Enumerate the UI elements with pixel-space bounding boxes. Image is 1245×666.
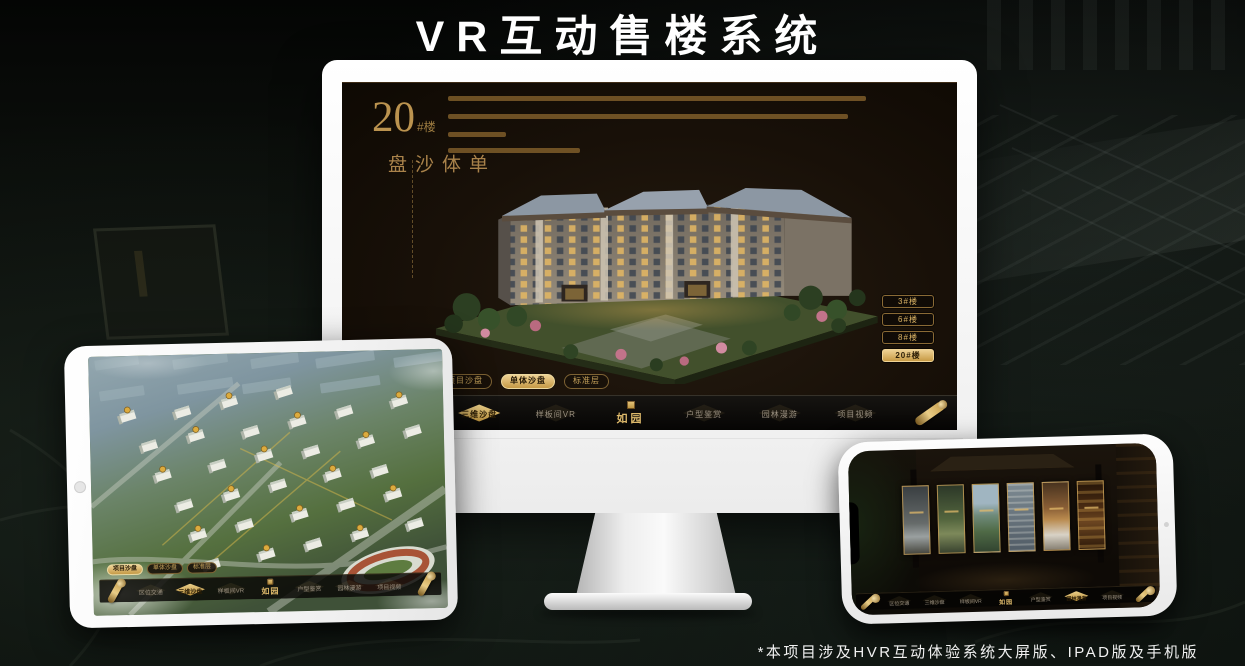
nav-item[interactable]: 园林漫游 (758, 402, 802, 424)
nav-item-label: 户型鉴赏 (686, 410, 722, 419)
nav-right-group: 户型鉴赏 园林漫游 项目视频 (285, 574, 413, 599)
nav-left-group: 区位交通 三维沙盘 样板间VR (127, 577, 255, 602)
nav-item-label: 项目视频 (377, 585, 401, 592)
scroll-menu-icon-right[interactable] (417, 572, 435, 596)
tablet-screen: 项目沙盘 单体沙盘 标准层 区位交通 (88, 349, 448, 616)
nav-item-label: 园林漫游 (337, 586, 361, 593)
nav-item[interactable]: 项目视频 (373, 574, 406, 597)
gallery-panel-building[interactable] (1007, 482, 1036, 552)
nav-item-label: 户型鉴赏 (1031, 597, 1051, 604)
building-3d-model (422, 152, 887, 384)
nav-item[interactable]: 户型鉴赏 (293, 576, 326, 599)
nav-item[interactable]: 区位交通 (885, 590, 914, 613)
nav-item[interactable]: 三维沙盘 (920, 589, 949, 612)
nav-item[interactable]: 户型鉴赏 (1026, 586, 1055, 609)
seal-icon (267, 579, 273, 585)
nav-item[interactable]: 样板间VR (532, 402, 580, 424)
nav-item-label: 样板间VR (218, 588, 244, 595)
gallery-panel-landscape[interactable] (972, 483, 1001, 553)
nav-item-label: 项目视频 (1102, 595, 1122, 602)
nav-item-label: 区位交通 (139, 590, 163, 597)
nav-right-group: 户型鉴赏 园林漫游 项目视频 (1019, 584, 1135, 609)
nav-item[interactable]: 三维沙盘 (174, 578, 207, 601)
building-number-suffix: #楼 (417, 120, 436, 134)
scene-gallery (902, 480, 1106, 555)
nav-item[interactable]: 园林漫游 (1062, 585, 1091, 608)
hero-divider (412, 160, 413, 278)
view-tab[interactable]: 单体沙盘 (147, 563, 183, 574)
pavilion-roof (922, 453, 1082, 471)
view-tab[interactable]: 标准层 (564, 374, 609, 389)
stage: VR互动售楼系统 20#楼 单体沙盘 (0, 0, 1245, 666)
monitor-stand (576, 513, 736, 596)
brand-logo[interactable]: 如园 (993, 590, 1019, 606)
scroll-menu-icon-left[interactable] (107, 579, 125, 603)
building-button[interactable]: 8#楼 (882, 331, 934, 344)
nav-right-group: 户型鉴赏 园林漫游 项目视频 (651, 402, 910, 424)
nav-left-group: 区位交通 三维沙盘 样板间VR (878, 587, 994, 612)
brand-logo[interactable]: 如园 (255, 578, 285, 597)
building-button[interactable]: 20#楼 (882, 349, 934, 362)
nav-item-label: 园林漫游 (1066, 596, 1086, 603)
monitor-view-tabs: 项目沙盘 单体沙盘 标准层 (438, 374, 609, 389)
nav-item-label: 样板间VR (536, 410, 576, 419)
gallery-panel-garden[interactable] (937, 484, 966, 554)
monitor-base (544, 593, 752, 610)
screen-top-accent (342, 82, 957, 83)
phone-camera-dot (1164, 522, 1169, 527)
view-tab[interactable]: 单体沙盘 (501, 374, 555, 389)
nav-item-label: 区位交通 (889, 601, 909, 608)
view-tab[interactable]: 标准层 (187, 562, 217, 573)
background-sign-frame (93, 224, 229, 339)
building-button[interactable]: 3#楼 (882, 295, 934, 308)
tablet-device: 项目沙盘 单体沙盘 标准层 区位交通 (64, 338, 458, 629)
gallery-panel-autumn[interactable] (1042, 481, 1071, 551)
phone-device: 区位交通 三维沙盘 样板间VR (838, 433, 1178, 624)
scroll-menu-icon[interactable] (913, 400, 946, 427)
nav-item-label: 户型鉴赏 (297, 587, 321, 594)
nav-item[interactable]: 样板间VR (213, 577, 248, 600)
building-button[interactable]: 6#楼 (882, 313, 934, 326)
building-hero-title: 20#楼 单体沙盘 (372, 96, 436, 139)
seal-icon (627, 401, 635, 409)
nav-item-label: 园林漫游 (762, 410, 798, 419)
nav-item-label: 项目视频 (837, 410, 873, 419)
scroll-menu-icon-left[interactable] (860, 594, 877, 611)
seal-icon (1003, 591, 1008, 596)
brand-logo[interactable]: 如园 (611, 401, 651, 426)
brand-logo-text: 如园 (261, 586, 279, 597)
nav-item[interactable]: 样板间VR (955, 588, 986, 611)
brand-logo-text: 如园 (617, 410, 645, 426)
building-number: 20 (372, 94, 415, 141)
nav-item[interactable]: 区位交通 (135, 579, 168, 602)
nav-item[interactable]: 三维沙盘 (457, 402, 501, 424)
gallery-panel-interior[interactable] (1077, 480, 1106, 550)
nav-item-label: 三维沙盘 (924, 600, 944, 607)
scroll-menu-icon-right[interactable] (1135, 586, 1152, 603)
phone-screen: 区位交通 三维沙盘 样板间VR (848, 443, 1160, 616)
footnote: *本项目涉及HVR互动体验系统大屏版、IPAD版及手机版 (758, 641, 1199, 662)
nav-item-label: 三维沙盘 (461, 410, 497, 419)
nav-item-label: 三维沙盘 (178, 589, 202, 596)
page-title: VR互动售楼系统 (0, 2, 1245, 64)
nav-item[interactable]: 户型鉴赏 (682, 402, 726, 424)
nav-item[interactable]: 项目视频 (833, 402, 877, 424)
brand-logo-text: 如园 (999, 596, 1013, 605)
nav-item[interactable]: 园林漫游 (333, 575, 366, 598)
nav-item[interactable]: 项目视频 (1098, 584, 1127, 607)
nav-item-label: 样板间VR (960, 599, 982, 606)
gallery-panel-courtyard[interactable] (902, 485, 931, 555)
building-selector: 3#楼 6#楼 8#楼 20#楼 (882, 295, 934, 367)
view-tab[interactable]: 项目沙盘 (107, 564, 143, 575)
